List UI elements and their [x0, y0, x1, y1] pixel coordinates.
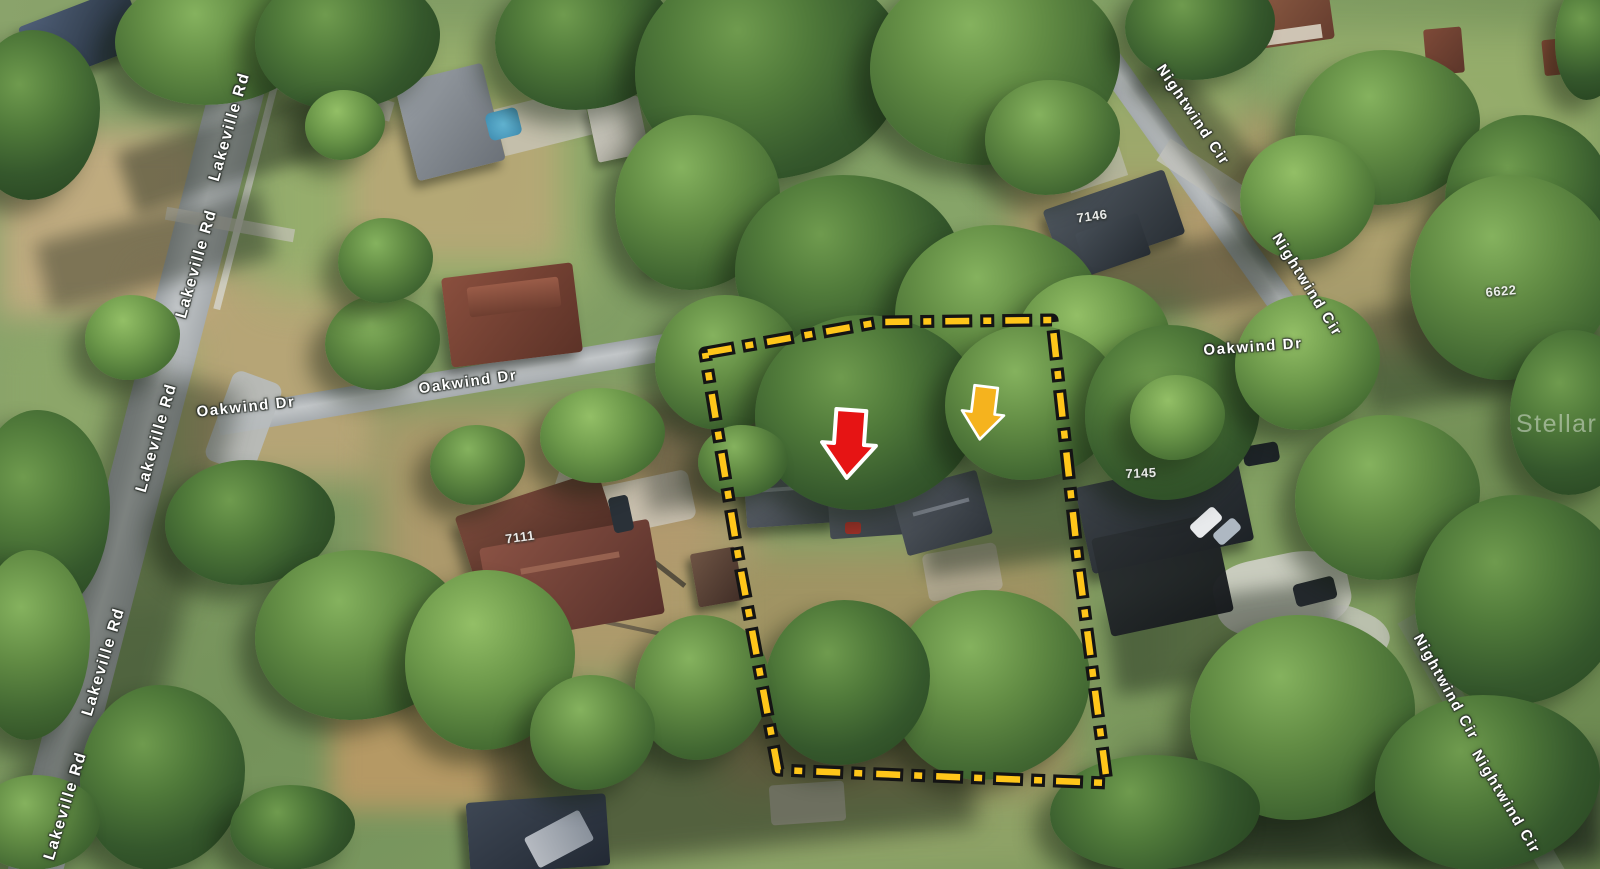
car: [845, 522, 861, 534]
aerial-scene: Stellar MLS Lakeville RdLakeville RdLake…: [0, 0, 1600, 869]
house-roof: [441, 262, 583, 367]
tree: [80, 685, 245, 869]
tree: [230, 785, 355, 869]
tree: [1235, 295, 1380, 430]
shed-roof: [690, 546, 745, 607]
